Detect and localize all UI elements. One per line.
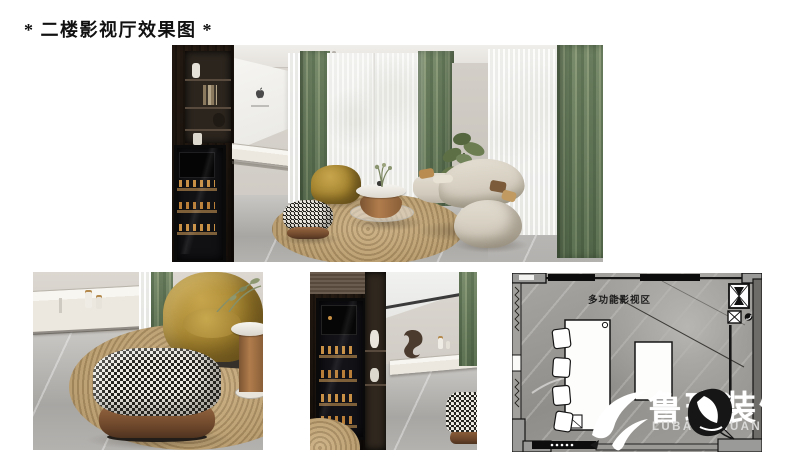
decor-bottle [85,292,92,308]
houndstooth-pouf [446,392,477,432]
round-ottoman [454,200,522,248]
green-curtain-right [557,45,603,258]
detail-render-wine-cabinet-image [310,272,477,450]
room-zone-label: 多功能影视区 [588,292,651,306]
page-title: * 二楼影视厅效果图 * [24,16,213,42]
side-table-top [231,322,263,336]
decor-bottle [446,341,450,349]
floor-plan-image: 多功能影视区 鲁班装饰 LUBAN ZHUANGS [512,273,762,452]
green-curtain [459,272,477,366]
cabinet-shelves [185,51,231,143]
screen-caption-line [251,105,269,107]
page: * 二楼影视厅效果图 * [0,0,800,459]
houndstooth-pouf [93,348,221,416]
luban-swoosh-icon [588,387,650,451]
apple-logo-icon [254,87,266,101]
sofa-cushion-cream [433,174,454,183]
cabinet-top-band [310,272,365,294]
shelf-sculpture [213,113,225,127]
shelf-books [203,85,217,105]
shelf-object [193,133,202,145]
niche-vase [370,330,379,348]
table-flowers [368,163,396,187]
ink-splash-icon [684,387,736,441]
detail-render-armchair-pouf-image [33,272,263,450]
plant-sprigs [211,272,263,312]
wine-fridge [174,145,226,262]
shelf-vase [192,63,200,78]
decor-bottle [438,338,443,349]
cabinet-niche [365,272,386,450]
main-render-image [172,45,603,262]
side-table-column [239,334,263,392]
mustard-armchair [311,165,361,204]
pouf-leather-base [287,227,329,239]
decor-candlestick [59,298,62,313]
decor-bottle [96,297,102,309]
bronze-sculpture [400,328,426,360]
armchair-seat [183,308,241,338]
niche-vase [370,368,379,382]
